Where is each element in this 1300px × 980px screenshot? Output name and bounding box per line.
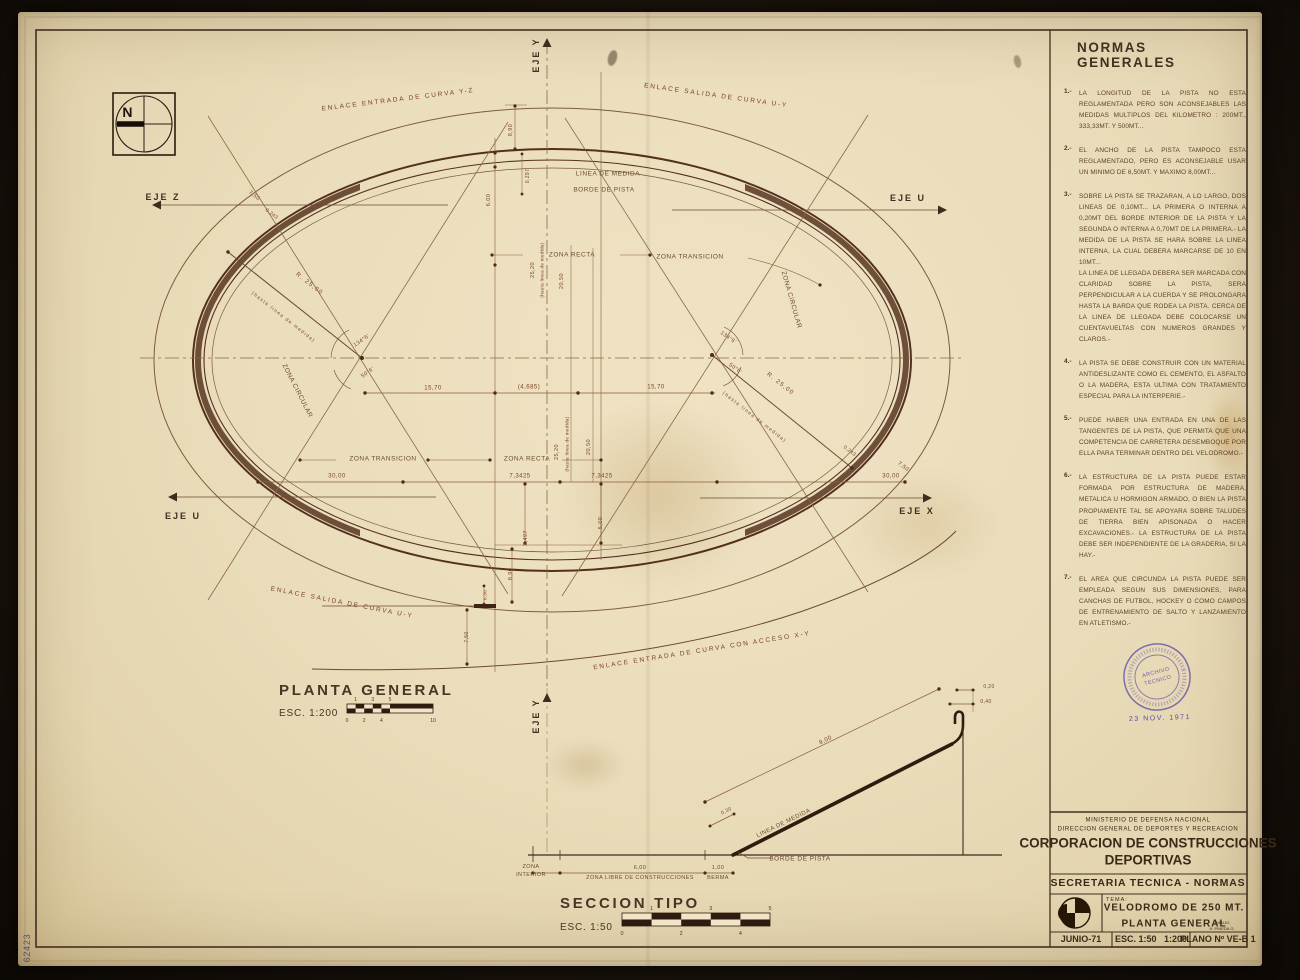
eje-x-label: EJE X [899,506,934,516]
seccion-tipo-scale: ESC. 1:50 [560,922,613,934]
north-symbol-icon [113,93,175,155]
drawn-label: DIBUJO [1215,921,1230,925]
zona-recta-top-label: ZONA RECTA [549,251,595,258]
eje-y-bottom-label: EJE Y [531,698,541,733]
section-dim-020: 0,20 [983,685,994,691]
svg-text:2: 2 [680,931,683,937]
ministry-line: MINISTERIO DE DEFENSA NACIONAL [1085,818,1210,825]
norm-item-7: 7.-EL AREA QUE CIRCUNDA LA PISTA PUEDE S… [1064,574,1246,629]
subject-line-1: VELODROMO DE 250 MT. [1104,903,1245,914]
dim-3497: 3,497 [523,530,529,546]
dim-2050-bottom: 20,50 [586,439,592,455]
zona-interior-label-2: INTERIOR [516,872,546,878]
dim-750-bottom: 7,50 [465,631,471,642]
zona-recta-bottom-label: ZONA RECTA [504,455,550,462]
dimension-dots [226,104,974,874]
normas-title: NORMAS GENERALES [1077,40,1246,70]
margin-note: 62423 [22,934,32,963]
dim-4685: (4,685) [518,385,540,392]
eje-z-label: EJE Z [146,192,181,202]
dim-2520-top: 25,20 [530,262,536,278]
dim-600-top: 6,00 [486,194,492,206]
svg-text:10: 10 [430,718,436,724]
svg-text:0: 0 [346,718,349,724]
planta-general-scale: ESC. 1:200 [279,708,338,720]
titleblock-date: JUNIO-71 [1061,935,1102,945]
corporation-logo-icon [1058,898,1090,928]
norm-item-1: 1.-LA LONGITUD DE LA PISTA NO ESTA REGLA… [1064,88,1246,132]
svg-text:5: 5 [768,906,771,912]
zona-transicion-top-label: ZONA TRANSICION [656,253,723,260]
eje-u-left-label: EJE U [165,511,201,521]
plan-scale-bar: 1 3 5 0 2 4 10 [346,697,436,724]
norm-item-2: 2.-EL ANCHO DE LA PISTA TAMPOCO ESTA REG… [1064,145,1246,178]
zona-interior-label-1: ZONA [522,864,539,870]
norm-item-6: 6.-LA ESTRUCTURA DE LA PISTA PUEDE ESTAR… [1064,472,1246,560]
section-dim-040: 0,40 [980,700,991,706]
dim-2520-top-note: (hasta linea de medida) [539,242,544,297]
planta-general-title: PLANTA GENERAL [279,682,453,699]
velodrome-plan [140,38,963,852]
dim-3000-left: 30,00 [328,474,345,481]
photographed-blueprint: 1 3 5 0 2 4 10 1 3 5 0 2 4 [0,0,1300,980]
eje-y-top-label: EJE Y [531,37,541,72]
dim-500: 5,00 [598,517,604,529]
dim-890-top: 8,90 [508,124,514,136]
zona-transicion-bottom-label: ZONA TRANSICION [349,455,416,462]
dim-1570-right: 15,70 [647,385,664,392]
titleblock-plan-number: PLANO Nº VE-B 1 [1180,935,1255,945]
secretariat-line: SECRETARIA TECNICA - NORMAS [1051,878,1246,890]
dim-030-plan: 0,30 [482,590,487,600]
titleblock-scales: ESC. 1:50 1:200 [1115,935,1187,945]
svg-text:4: 4 [739,931,742,937]
dim-0297: 0,297 [526,169,532,184]
normas-generales-panel: NORMAS GENERALES 1.-LA LONGITUD DE LA PI… [1064,40,1246,642]
eje-u-right-label: EJE U [890,193,926,203]
borde-de-pista-label: BORDE DE PISTA [573,186,634,193]
section-dim-100: 1,00 [712,865,724,871]
dim-3000-right: 30,00 [882,474,899,481]
dim-73425-left: 7,3425 [509,474,530,481]
dim-2520-bottom-note: (hasta linea de medida) [564,416,569,471]
svg-text:0: 0 [620,931,623,937]
north-letter: N [122,104,133,120]
dim-890-bottom: 8,90 [508,568,514,580]
norm-item-3: 3.-SOBRE LA PISTA SE TRAZARAN, A LO LARG… [1064,191,1246,345]
direction-line: DIRECCION GENERAL DE DEPORTES Y RECREACI… [1058,827,1239,834]
norm-item-4: 4.-LA PISTA SE DEBE CONSTRUIR CON UN MAT… [1064,358,1246,402]
corporation-line-1: CORPORACION DE CONSTRUCCIONES [1019,837,1276,852]
dim-2050-top: 20,50 [559,273,565,289]
dim-73425-right: 7,3425 [591,474,612,481]
dim-1570-left: 15,70 [424,386,441,393]
svg-text:4: 4 [380,718,383,724]
svg-text:3: 3 [709,906,712,912]
section-drawing [528,689,1002,873]
section-dim-600: 6,00 [634,865,646,871]
berma-label: BERMA [707,875,729,881]
drawn-by: H. PINEDA G. [1209,927,1234,931]
corporation-line-2: DEPORTIVAS [1105,854,1192,869]
seccion-tipo-title: SECCION TIPO [560,895,700,912]
zona-libre-label: ZONA LIBRE DE CONSTRUCCIONES [586,875,694,881]
linea-de-medida-label: LINEA DE MEDIDA [576,170,640,177]
dim-2520-bottom: 25,20 [554,444,560,460]
norm-item-5: 5.-PUEDE HABER UNA ENTRADA EN UNA DE LAS… [1064,415,1246,459]
section-borde-de-pista-label: BORDE DE PISTA [769,855,830,862]
svg-text:2: 2 [363,718,366,724]
